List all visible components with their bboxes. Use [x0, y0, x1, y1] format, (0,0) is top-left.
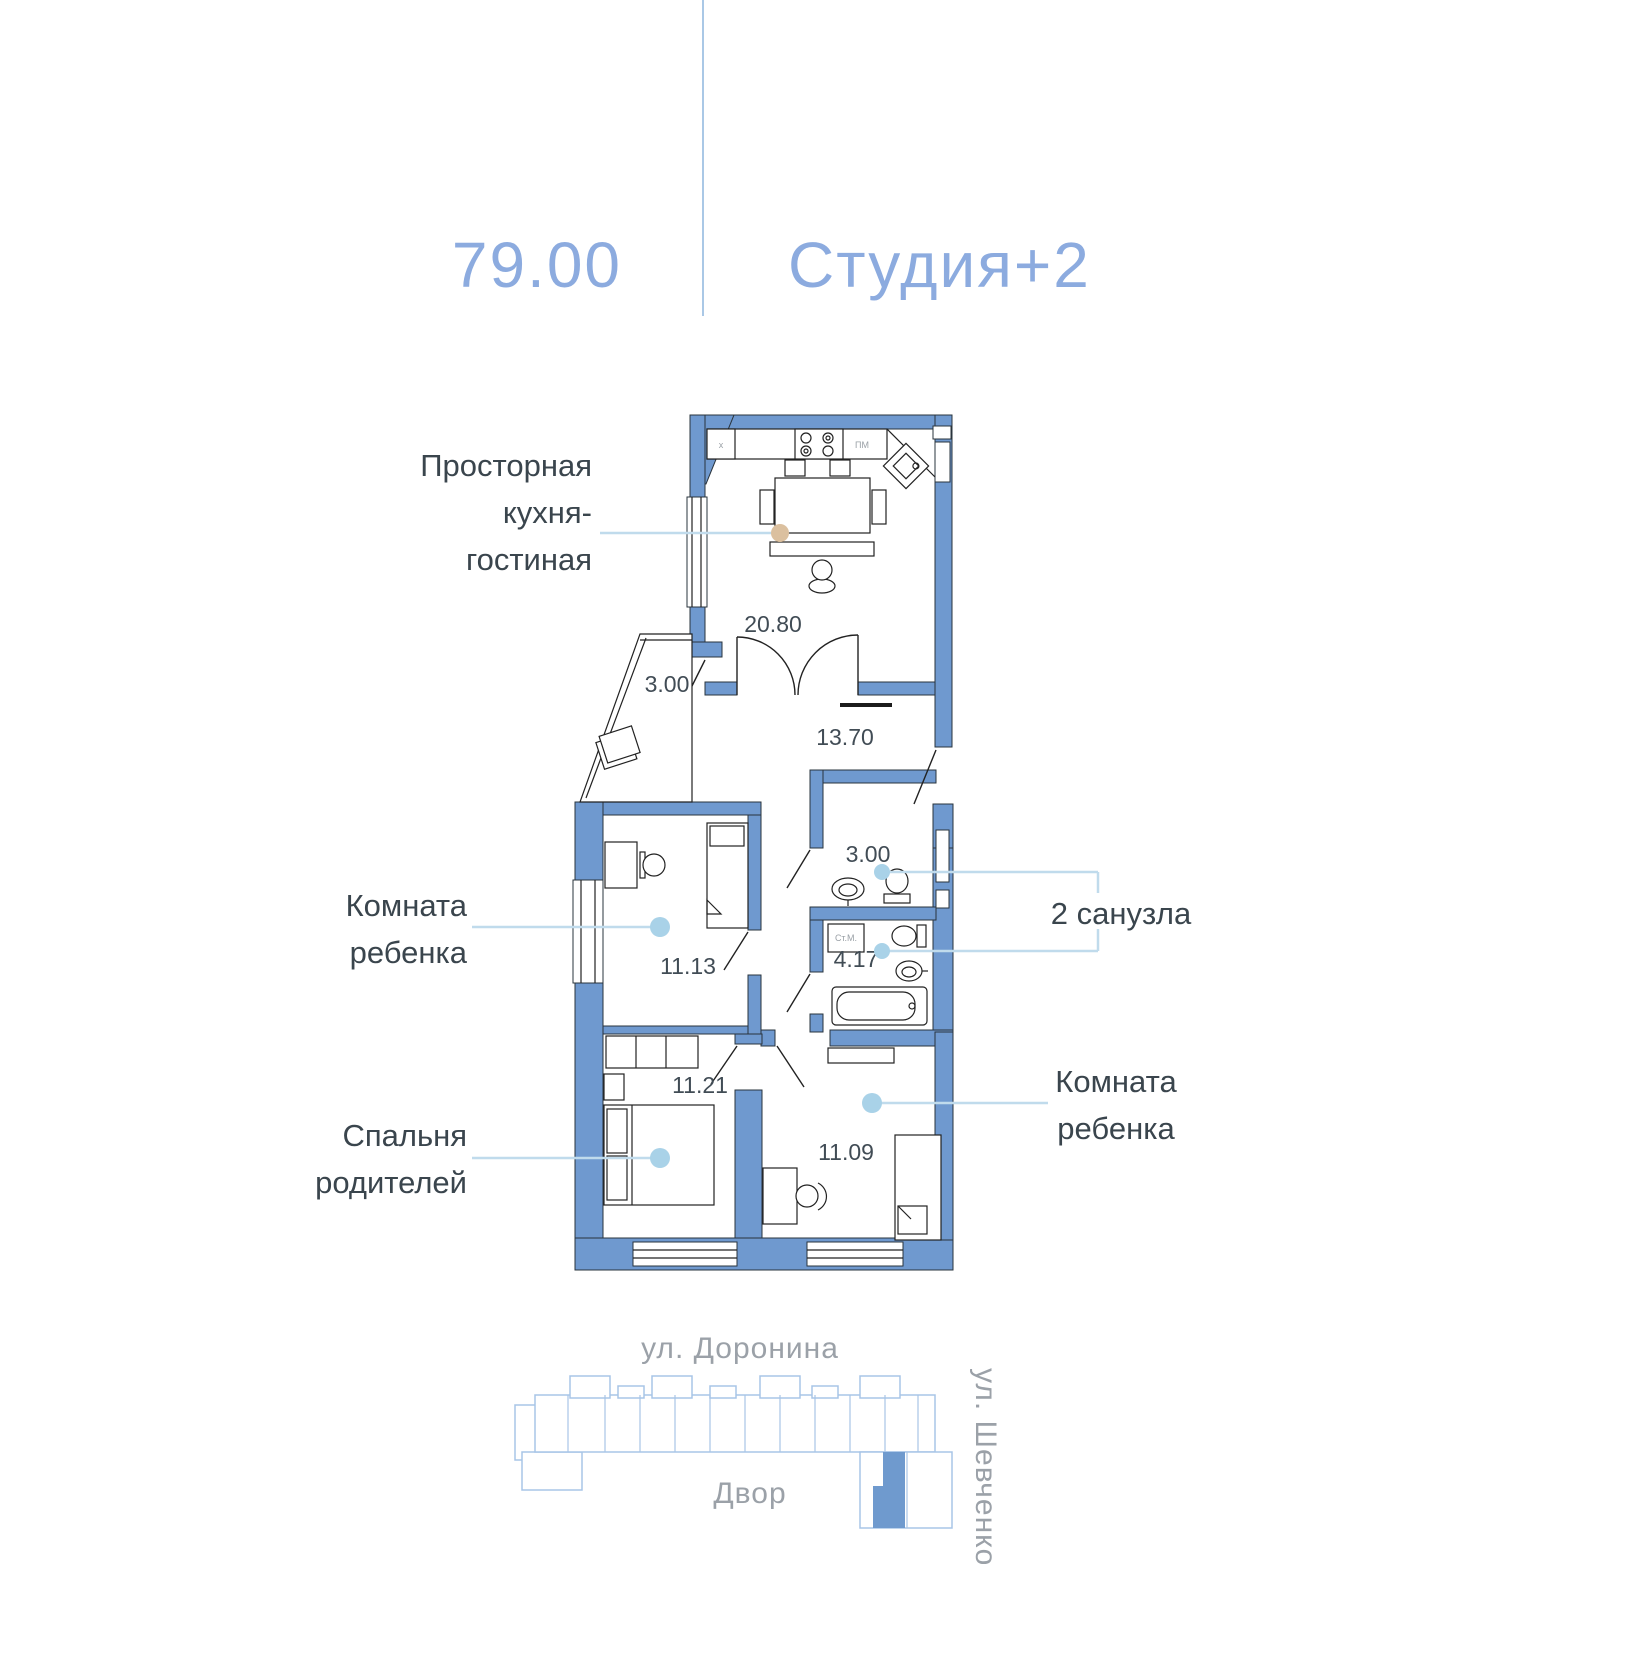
label-child-room-1: Комната ребенка [240, 882, 467, 976]
stove-icon [795, 429, 843, 459]
bathtub-icon [832, 987, 927, 1025]
bed-icon [895, 1135, 941, 1240]
label-bathrooms: 2 санузла [1021, 890, 1221, 937]
child2-door-leaf [777, 1046, 804, 1087]
bath-door-leaf [787, 974, 810, 1012]
person-chair-icon [809, 560, 835, 593]
double-bed-icon [604, 1105, 714, 1205]
street-doronina-label: ул. Доронина [570, 1332, 910, 1366]
desk-icon [763, 1168, 797, 1224]
apartment-type: Студия+2 [788, 228, 1091, 302]
label-parents-bedroom: Спальня родителей [240, 1112, 467, 1206]
area-wc: 3.00 [846, 841, 891, 867]
site-plan [460, 1280, 1020, 1580]
kitchen-door-arc-left [737, 637, 795, 695]
area-kitchen: 20.80 [744, 611, 802, 637]
header-divider [702, 0, 704, 316]
kitchen-window [687, 497, 707, 607]
dining-table-icon [760, 460, 886, 556]
shelf-icon [828, 1048, 894, 1063]
tv-icon [840, 703, 892, 707]
dishwasher-label: ПМ [855, 440, 869, 450]
bed-icon [707, 823, 748, 928]
corner-sink-icon [883, 443, 928, 488]
balcony [580, 634, 692, 802]
nightstand-icon [604, 1074, 624, 1100]
kitchen-furniture [707, 429, 935, 707]
street-shevchenko-label: ул. Шевченко [968, 1368, 1002, 1566]
label-kitchen: Просторная кухня- гостиная [340, 442, 592, 583]
washbasin-icon [896, 961, 928, 981]
wardrobe-icon [606, 1036, 698, 1068]
area-bath: 4.17 [834, 946, 879, 972]
area-hallway: 13.70 [816, 724, 874, 750]
child2-window [807, 1242, 903, 1266]
label-child-room-2: Комната ребенка [1006, 1058, 1226, 1152]
page: 79.00 Студия+2 [0, 0, 1644, 1654]
area-child2: 11.09 [818, 1139, 874, 1165]
area-child1: 11.13 [660, 953, 716, 979]
toilet-icon [884, 869, 910, 903]
toilet-icon [892, 925, 926, 947]
bedroom-window [633, 1242, 737, 1266]
area-bedroom: 11.21 [672, 1072, 728, 1098]
wc-furniture [832, 869, 910, 906]
child1-furniture [605, 823, 748, 928]
desk-icon [605, 842, 637, 888]
child1-door-leaf [724, 932, 748, 970]
wc-door-leaf [787, 850, 810, 888]
child1-window [573, 880, 603, 983]
chair-icon [796, 1185, 818, 1207]
fridge-label: x [719, 440, 724, 450]
apartment-area-value: 79.00 [360, 228, 622, 302]
washing-machine-label: Ст.М. [835, 933, 857, 943]
courtyard-label: Двор [650, 1477, 850, 1511]
kitchen-door-arc-right [798, 635, 858, 695]
floor-plan: 20.80 3.00 13.70 3.00 4.17 11.13 11.21 1… [540, 390, 960, 1280]
bedroom-furniture [604, 1036, 714, 1205]
washbasin-icon [832, 878, 864, 906]
area-balcony: 3.00 [645, 671, 690, 697]
